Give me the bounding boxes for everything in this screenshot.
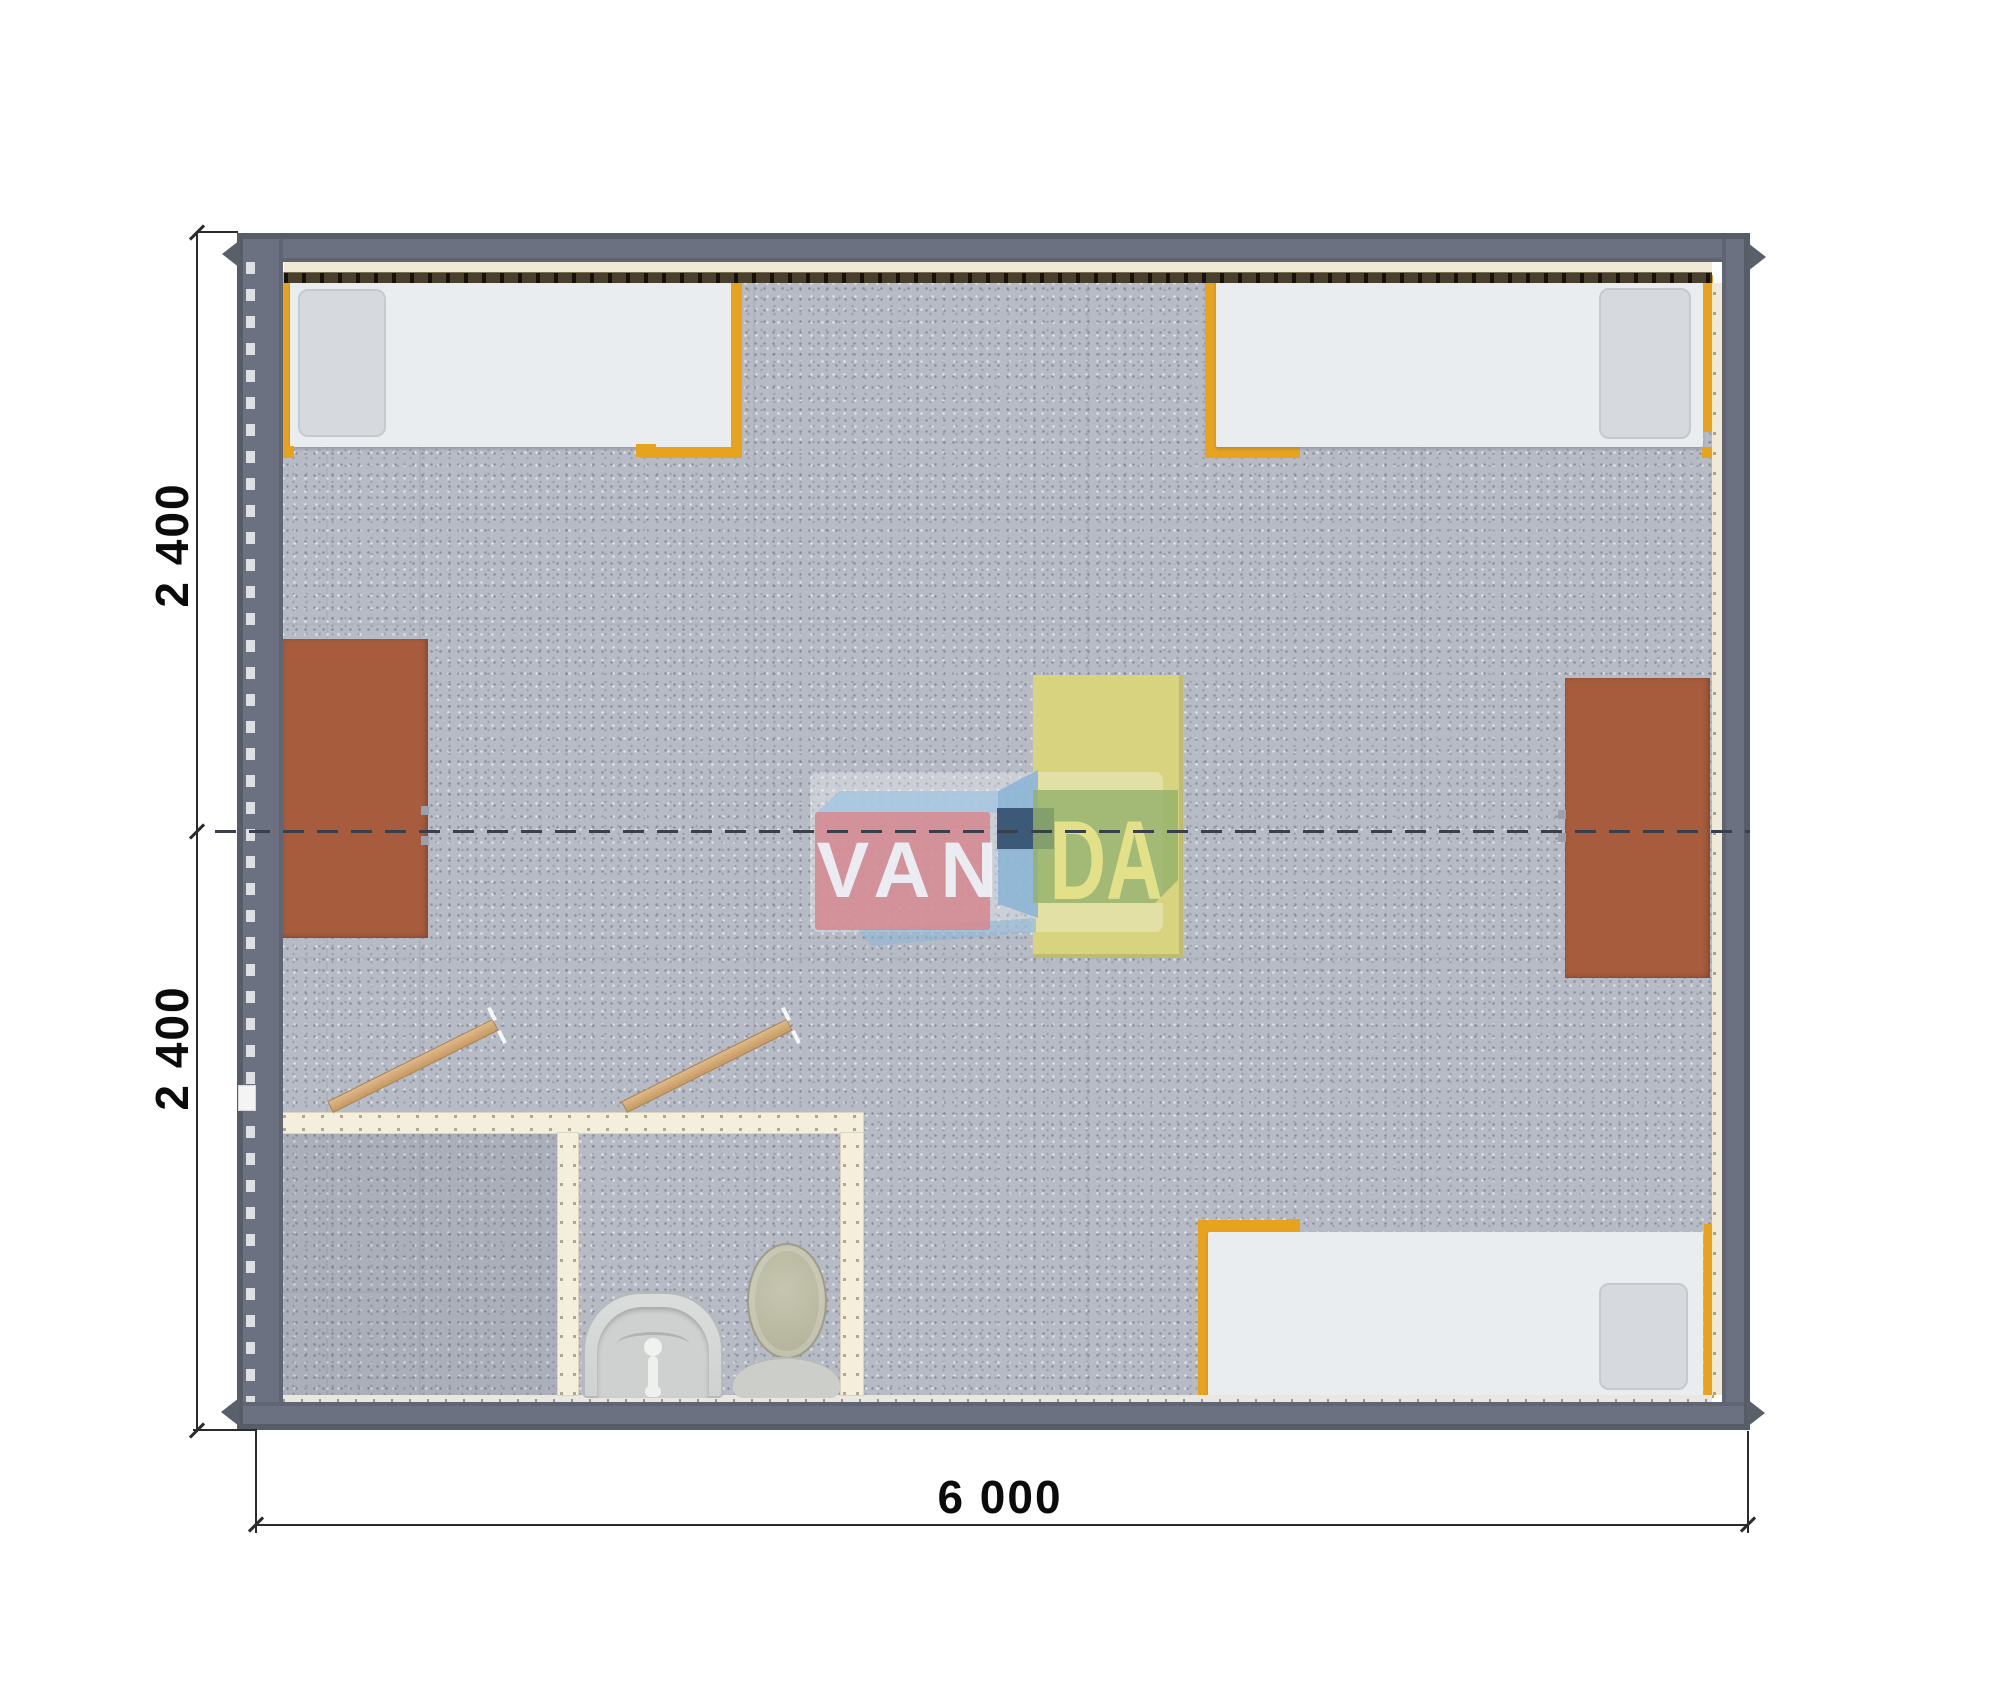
bed-frame-corner xyxy=(1702,447,1712,458)
dimension-label-width: 6 000 xyxy=(888,1472,1112,1522)
desk-left xyxy=(283,639,428,938)
sink-faucet-base xyxy=(645,1386,661,1397)
desk-right xyxy=(1565,678,1710,978)
module-joint-tab xyxy=(1558,810,1566,819)
entry-door-mark xyxy=(238,1085,256,1111)
corner-connector-bottom-right xyxy=(1747,1399,1765,1427)
bed-frame-corner xyxy=(636,444,656,457)
bathroom-left-room-floor xyxy=(283,1133,558,1395)
watermark-text-da: DA xyxy=(1050,806,1141,916)
corner-connector-top-right xyxy=(1748,243,1766,271)
dimension-label-module-bottom: 2 400 xyxy=(147,936,197,1160)
sink-drain xyxy=(644,1338,662,1356)
dimension-extension xyxy=(255,1431,257,1533)
pillow xyxy=(298,289,386,437)
bed-frame-rail xyxy=(731,275,742,458)
module-joint-tab xyxy=(1558,833,1566,842)
dimension-line-horizontal xyxy=(255,1524,1749,1526)
dimension-label-module-top: 2 400 xyxy=(147,433,197,657)
dimension-extension xyxy=(197,231,238,233)
right-wall-lining xyxy=(1712,283,1722,1395)
bed-frame-rail xyxy=(1205,273,1216,458)
pillow xyxy=(1599,288,1691,439)
wall-outer-edge xyxy=(237,233,1750,239)
ribbon-window xyxy=(284,272,1712,283)
corner-connector-top-left xyxy=(222,240,240,268)
corner-connector-bottom-left xyxy=(221,1398,239,1426)
dimension-extension xyxy=(1747,1431,1749,1533)
bed-frame-rail xyxy=(1198,1232,1208,1398)
bed-frame-corner xyxy=(1286,1219,1300,1232)
top-wall-lining xyxy=(284,262,1712,272)
watermark-text-van: VAN xyxy=(806,830,1018,910)
module-joint-tab xyxy=(421,806,429,815)
toilet xyxy=(747,1243,827,1359)
bathroom-wall-right xyxy=(841,1133,863,1395)
bathroom-wall-top xyxy=(283,1113,863,1133)
bathroom-wall-divider xyxy=(558,1133,578,1395)
dimension-extension xyxy=(193,1429,257,1431)
floor-plan-canvas: VAN DA 2 400 2 400 6 000 xyxy=(0,0,2000,1701)
pillow xyxy=(1599,1283,1688,1390)
module-joint-tab xyxy=(421,836,429,845)
wall-outer-edge xyxy=(237,1424,1750,1430)
module-joint-line xyxy=(215,830,1750,833)
bed-frame-rail xyxy=(1198,1220,1298,1232)
